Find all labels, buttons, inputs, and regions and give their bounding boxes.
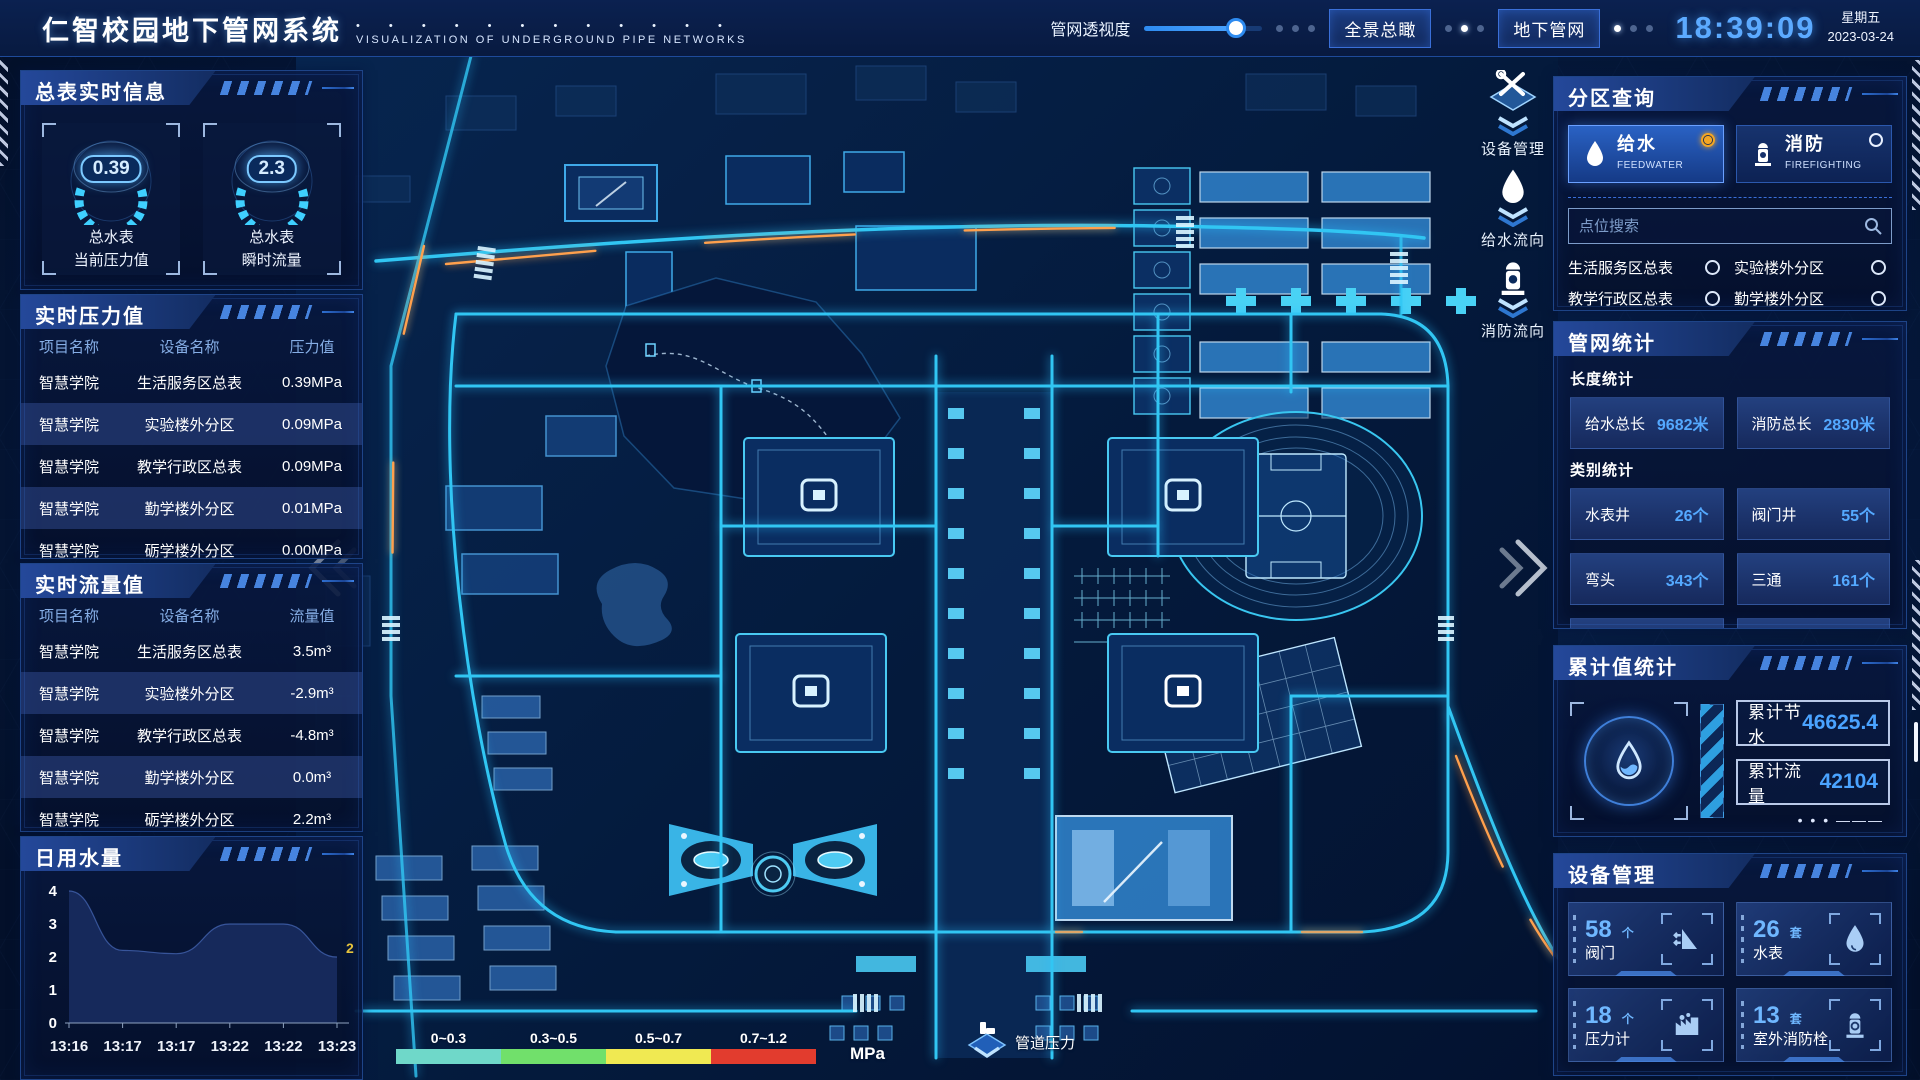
device-card-pressure-gauges[interactable]: 18个 压力计	[1568, 988, 1724, 1062]
legend-segment: 0.5~0.7	[606, 1030, 711, 1064]
stat-tile-fire-length: 消防总长2830米	[1737, 397, 1891, 449]
clock: 18:39:09 星期五 2023-03-24	[1675, 9, 1894, 47]
app-header: 仁智校园地下管网系统 • • • • • • • • • • • • VISUA…	[0, 0, 1920, 57]
dashboard-root: 设备管理 给水流向	[0, 0, 1920, 1080]
brand: 仁智校园地下管网系统 • • • • • • • • • • • • VISUA…	[0, 9, 747, 48]
basketball-courts	[1134, 168, 1190, 414]
clock-weekday: 星期五	[1828, 9, 1895, 28]
svg-text:13:17: 13:17	[157, 1038, 195, 1055]
legend-swatch	[711, 1049, 816, 1064]
toolbar-water-flow[interactable]: 给水流向	[1481, 167, 1545, 250]
table-row: 智慧学院实验楼外分区-2.9m³	[21, 672, 362, 714]
panel-master-meter: 总表实时信息 0.39 总水表 当前压力值	[20, 70, 363, 290]
panorama-button[interactable]: 全景总瞰	[1329, 9, 1431, 48]
point-item[interactable]: 实验楼外分区	[1734, 252, 1892, 283]
stat-tile-clipped	[1570, 618, 1724, 629]
point-item[interactable]: 教学行政区总表	[1568, 283, 1726, 311]
svg-text:4: 4	[48, 883, 57, 900]
fountain	[756, 857, 790, 891]
panel-realtime-flow: 实时流量值 项目名称 设备名称 流量值 智慧学院生活服务区总表3.5m³ 智慧学…	[20, 563, 363, 832]
dot-separator	[1276, 25, 1315, 32]
svg-text:2: 2	[48, 949, 56, 966]
table-row: 智慧学院砺学楼外分区2.2m³	[21, 798, 362, 832]
west-buildings	[446, 416, 616, 594]
striped-divider	[1700, 704, 1724, 818]
clock-time: 18:39:09	[1675, 10, 1815, 46]
device-card-water-meters[interactable]: 26套 水表	[1736, 902, 1892, 976]
dot-separator	[1445, 25, 1484, 32]
hydrant-icon	[1751, 140, 1775, 168]
legend-swatch	[606, 1049, 711, 1064]
tools-icon	[1487, 70, 1539, 116]
point-item[interactable]: 勤学楼外分区	[1734, 283, 1892, 311]
chevron-down-icon	[1496, 116, 1530, 136]
panel-title: 总表实时信息	[35, 76, 167, 105]
outdoor-hydrant-icon	[1841, 1010, 1869, 1040]
svg-text:0: 0	[48, 1015, 56, 1032]
panel-daily-water: 日用水量 0123413:1613:1713:1713:2213:2213:23…	[20, 836, 363, 1080]
table-header: 项目名称 设备名称 流量值	[21, 600, 362, 630]
stat-tile-elbows: 弯头343个	[1570, 553, 1724, 605]
panel-zone-query: 分区查询 给水 FEEDWATER 消防 FIREFIGHTING	[1553, 76, 1907, 311]
toolbar-fire-flow[interactable]: 消防流向	[1481, 258, 1545, 341]
chevron-down-icon	[1496, 207, 1530, 227]
table-row: 智慧学院实验楼外分区0.09MPa	[21, 403, 362, 445]
legend-segment: 0.3~0.5	[501, 1030, 606, 1064]
panel-title: 实时压力值	[35, 300, 145, 329]
tab-radio-selected[interactable]	[1701, 133, 1715, 147]
stat-tile-valve-wells: 阀门井55个	[1737, 488, 1891, 540]
hazard-stripes-decor	[0, 60, 8, 166]
water-meter-icon	[1842, 923, 1868, 955]
svg-text:13:23: 13:23	[317, 1038, 355, 1055]
toolbar-label: 给水流向	[1481, 229, 1545, 250]
entrance-plazas	[669, 824, 877, 896]
radio-circle-icon[interactable]	[1705, 291, 1720, 306]
east-dorms	[1200, 172, 1476, 418]
gauge-label-line1: 总水表	[203, 227, 341, 250]
point-search[interactable]	[1568, 208, 1892, 244]
search-icon[interactable]	[1863, 216, 1883, 236]
table-header: 项目名称 设备名称 压力值	[21, 331, 362, 361]
panel-pipe-stats: 管网统计 长度统计 给水总长9682米 消防总长2830米 类别统计 水表井26…	[1553, 321, 1907, 629]
gauge-pressure: 0.39	[56, 129, 166, 225]
panel-title: 累计值统计	[1568, 651, 1678, 680]
left-dorm-cluster	[376, 696, 556, 1000]
panel-device-management: 设备管理 58个 阀门 26套 水表	[1553, 853, 1907, 1076]
table-row: 智慧学院勤学楼外分区0.0m³	[21, 756, 362, 798]
cumulative-saved-water: 累计节水46625.4	[1736, 700, 1890, 746]
category-stats-title: 类别统计	[1554, 449, 1906, 486]
hazard-stripes-decor	[1912, 60, 1920, 210]
panel-realtime-pressure: 实时压力值 项目名称 设备名称 压力值 智慧学院生活服务区总表0.39MPa 智…	[20, 294, 363, 559]
point-list: 生活服务区总表 实验楼外分区 教学行政区总表 勤学楼外分区 砺学楼外分区 宿舍区…	[1554, 244, 1906, 311]
daily-water-chart: 0123413:1613:1713:1713:2213:2213:232	[27, 877, 357, 1069]
toolbar-device-management[interactable]: 设备管理	[1481, 70, 1545, 159]
pressure-legend: 0~0.3 0.3~0.5 0.5~0.7 0.7~1.2 MPa	[396, 1020, 1075, 1064]
slashes-decor	[1759, 332, 1852, 346]
water-drop-icon	[1496, 167, 1530, 207]
tab-radio[interactable]	[1869, 133, 1883, 147]
map-canvas	[296, 56, 1558, 1080]
app-subtitle: VISUALIZATION OF UNDERGROUND PIPE NETWOR…	[356, 35, 747, 46]
slider-knob[interactable]	[1226, 18, 1246, 38]
chevron-down-icon	[1496, 298, 1530, 318]
svg-text:1: 1	[48, 982, 56, 999]
hydrant-icon	[1496, 258, 1530, 298]
transparency-slider-label: 管网透视度	[1050, 16, 1130, 40]
svg-text:2: 2	[346, 940, 354, 956]
underground-pipes-button[interactable]: 地下管网	[1498, 9, 1600, 48]
stat-tile-tees: 三通161个	[1737, 553, 1891, 605]
pond	[597, 563, 672, 646]
cumulative-flow: 累计流量42104	[1736, 759, 1890, 805]
slashes-decor	[1759, 87, 1852, 101]
map-toolbar: 设备管理 给水流向	[1478, 70, 1548, 341]
table-row: 智慧学院教学行政区总表-4.8m³	[21, 714, 362, 756]
valve-icon	[1672, 924, 1702, 954]
tab-label: 给水	[1617, 134, 1657, 154]
legend-segment: 0~0.3	[396, 1030, 501, 1064]
tab-feedwater[interactable]: 给水 FEEDWATER	[1568, 125, 1724, 183]
gauge-card-pressure: 0.39 总水表 当前压力值	[42, 123, 180, 275]
gauge-label-line2: 瞬时流量	[203, 250, 341, 273]
cumulative-water-icon-frame	[1570, 702, 1688, 820]
clock-date: 2023-03-24	[1828, 28, 1895, 47]
panel-title: 实时流量值	[35, 569, 145, 598]
app-title: 仁智校园地下管网系统	[42, 9, 342, 48]
legend-range-label: 0.5~0.7	[635, 1030, 682, 1046]
transparency-slider-fill	[1144, 26, 1236, 31]
hazard-stripes-decor	[1912, 560, 1920, 710]
radio-circle-icon[interactable]	[1871, 291, 1886, 306]
tab-sublabel: FIREFIGHTING	[1785, 160, 1862, 171]
tab-sublabel: FEEDWATER	[1617, 160, 1683, 171]
gauge-value: 2.3	[247, 155, 297, 183]
toolbar-label: 消防流向	[1481, 320, 1545, 341]
legend-swatch	[501, 1049, 606, 1064]
water-drop-icon	[1612, 740, 1646, 782]
table-row: 智慧学院教学行政区总表0.09MPa	[21, 445, 362, 487]
table-row: 智慧学院生活服务区总表0.39MPa	[21, 361, 362, 403]
panel-title: 分区查询	[1568, 82, 1656, 111]
radio-circle-icon[interactable]	[1871, 260, 1886, 275]
title-dots-decor: • • • • • • • • • • • •	[356, 21, 747, 32]
panel-title: 管网统计	[1568, 327, 1656, 356]
legend-range-label: 0.3~0.5	[530, 1030, 577, 1046]
slashes-decor	[1759, 864, 1852, 878]
pressure-gauge-icon	[1672, 1010, 1702, 1040]
svg-text:13:22: 13:22	[210, 1038, 248, 1055]
stat-tile-water-meter-wells: 水表井26个	[1570, 488, 1724, 540]
length-stats-title: 长度统计	[1554, 358, 1906, 395]
pipe-pressure-label: 管道压力	[1015, 1032, 1075, 1053]
scrollbar-thumb[interactable]	[1914, 722, 1918, 762]
device-card-valves[interactable]: 58个 阀门	[1568, 902, 1724, 976]
svg-text:13:16: 13:16	[49, 1038, 87, 1055]
pressure-gauge-icon	[967, 1020, 1007, 1064]
point-item[interactable]: 生活服务区总表	[1568, 252, 1726, 283]
svg-text:13:17: 13:17	[103, 1038, 141, 1055]
campus-map[interactable]: 设备管理 给水流向	[296, 56, 1558, 1080]
table-row: 智慧学院勤学楼外分区0.01MPa	[21, 487, 362, 529]
radio-circle-icon[interactable]	[1705, 260, 1720, 275]
device-card-outdoor-hydrants[interactable]: 13套 室外消防栓	[1736, 988, 1892, 1062]
table-row: 智慧学院生活服务区总表3.5m³	[21, 630, 362, 672]
panel-header: 总表实时信息	[21, 71, 362, 107]
slashes-decor	[220, 847, 313, 861]
gauge-flow: 2.3	[217, 129, 327, 225]
tab-label: 消防	[1785, 134, 1825, 154]
dot-separator	[1614, 25, 1653, 32]
legend-segment: 0.7~1.2	[711, 1030, 816, 1064]
stat-tile-feedwater-length: 给水总长9682米	[1570, 397, 1724, 449]
toolbar-label: 设备管理	[1481, 138, 1545, 159]
ellipsis-decor: • • • ———	[1798, 818, 1884, 822]
gauge-label-line2: 当前压力值	[42, 250, 180, 273]
legend-range-label: 0~0.3	[431, 1030, 466, 1046]
stat-tile-clipped	[1737, 618, 1891, 629]
search-input[interactable]	[1569, 209, 1867, 243]
slashes-decor	[220, 574, 313, 588]
gauge-label-line1: 总水表	[42, 227, 180, 250]
water-drop-icon	[1583, 139, 1607, 169]
slashes-decor	[1759, 656, 1852, 670]
transparency-slider[interactable]	[1144, 19, 1262, 37]
svg-text:13:22: 13:22	[264, 1038, 302, 1055]
table-row: 智慧学院砺学楼外分区0.00MPa	[21, 529, 362, 559]
pipe-pressure-indicator[interactable]: 管道压力	[967, 1020, 1075, 1064]
panel-title: 日用水量	[35, 842, 123, 871]
legend-range-label: 0.7~1.2	[740, 1030, 787, 1046]
legend-unit: MPa	[850, 1044, 885, 1064]
parking-rows	[1074, 568, 1170, 642]
tab-firefighting[interactable]: 消防 FIREFIGHTING	[1736, 125, 1892, 183]
slashes-decor	[220, 81, 313, 95]
gauge-card-flow: 2.3 总水表 瞬时流量	[203, 123, 341, 275]
dashed-divider	[1568, 197, 1892, 198]
gymnasium	[1056, 816, 1232, 920]
slashes-decor	[220, 305, 313, 319]
panel-title: 设备管理	[1568, 859, 1656, 888]
legend-swatch	[396, 1049, 501, 1064]
svg-text:3: 3	[48, 916, 56, 933]
panel-cumulative: 累计值统计 累计节水46625.4 累计流量42104	[1553, 645, 1907, 837]
gauge-value: 0.39	[81, 155, 142, 183]
